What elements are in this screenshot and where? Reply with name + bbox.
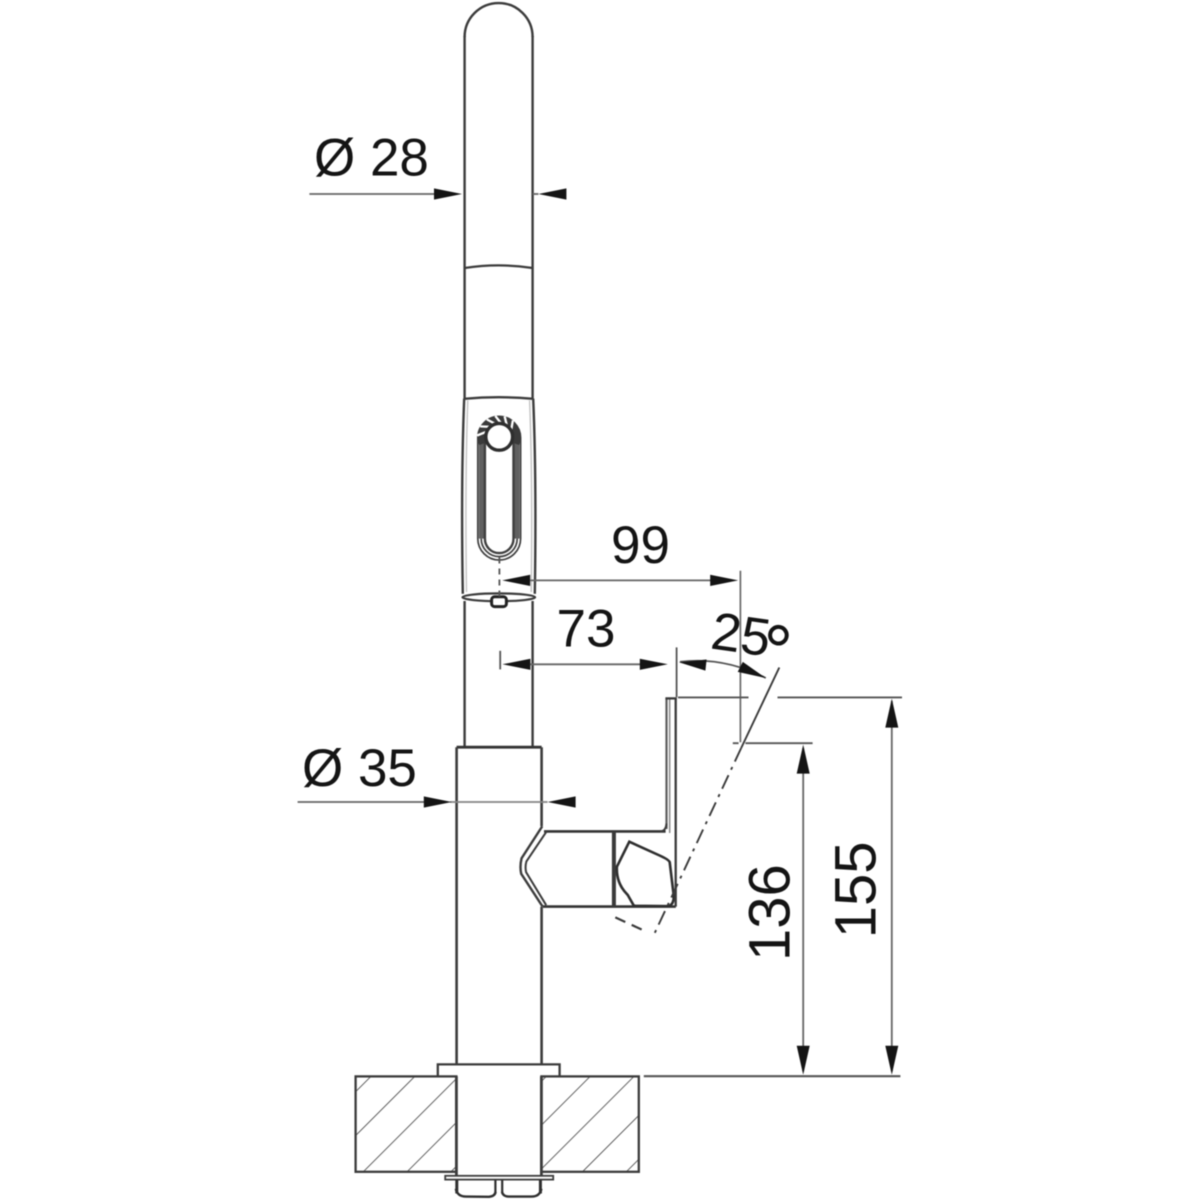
svg-text:136: 136 xyxy=(738,864,803,961)
svg-text:99: 99 xyxy=(611,516,670,575)
svg-text:155: 155 xyxy=(824,842,889,939)
svg-text:Ø 35: Ø 35 xyxy=(302,739,417,798)
svg-text:Ø 28: Ø 28 xyxy=(314,129,429,188)
svg-text:73: 73 xyxy=(557,600,616,659)
svg-text:25: 25 xyxy=(708,602,775,669)
